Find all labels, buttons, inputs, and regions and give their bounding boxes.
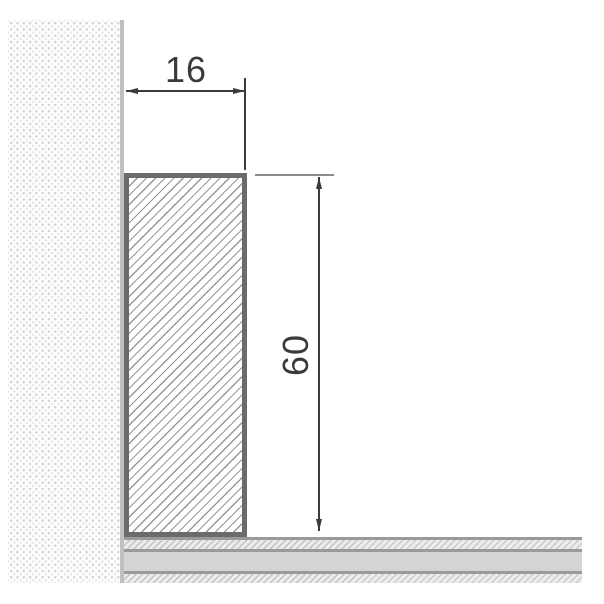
arrowhead-up-icon: [316, 177, 322, 189]
height-extension-line: [255, 174, 334, 176]
height-dimension-line: [318, 177, 320, 531]
height-dimension-label: 60: [278, 325, 314, 385]
floor-lower-hatch-layer: [124, 574, 582, 583]
technical-drawing-canvas: 16 60: [0, 0, 604, 604]
arrowhead-left-icon: [126, 88, 138, 94]
width-dimension-label: 16: [146, 52, 226, 88]
floor-core-layer: [124, 552, 582, 571]
floor-upper-hatch-layer: [124, 540, 582, 549]
floor-section: [124, 537, 582, 583]
width-extension-line: [244, 78, 246, 170]
arrowhead-down-icon: [316, 519, 322, 531]
width-dimension-line: [126, 90, 245, 92]
skirting-profile-section: [124, 173, 247, 537]
wall-section: [8, 20, 120, 583]
